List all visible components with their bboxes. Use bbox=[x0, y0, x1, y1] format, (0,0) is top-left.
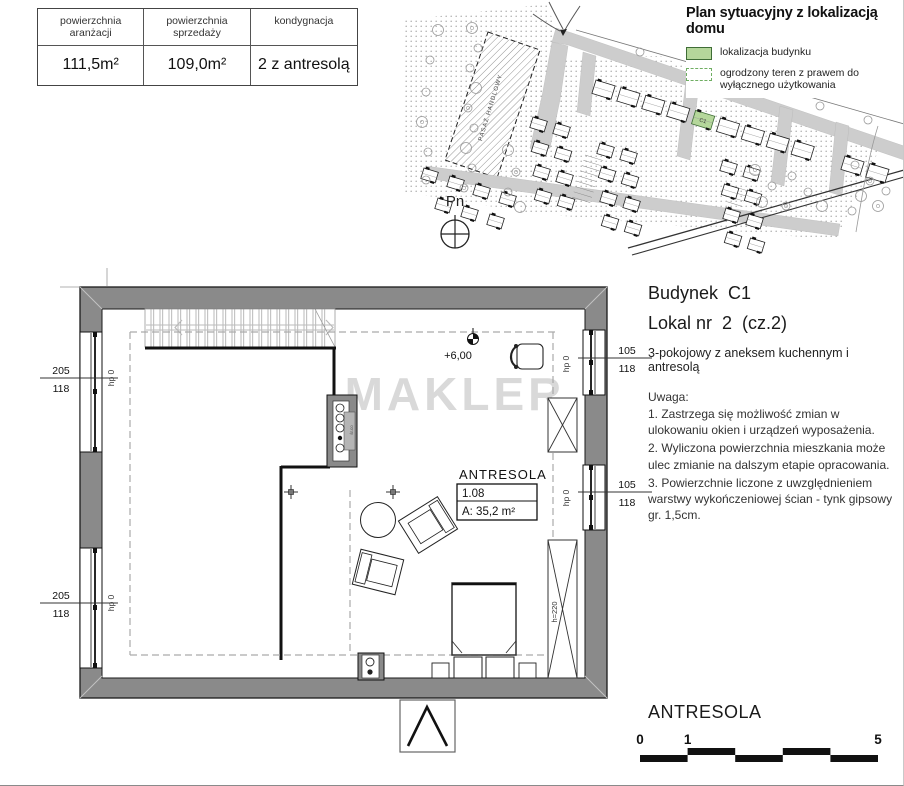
note-item: 3. Powierzchnie liczone z uwzględnieniem… bbox=[648, 475, 900, 524]
floor-plan-page: powierzchnia aranżacji powierzchnia sprz… bbox=[0, 0, 904, 786]
site-house bbox=[486, 212, 505, 230]
tree-icon bbox=[864, 116, 872, 124]
scale-bar-segments bbox=[640, 748, 878, 762]
building-title: Budynek C1 bbox=[648, 283, 900, 304]
crossed-zone bbox=[548, 398, 577, 452]
shaft-label: śr.co bbox=[349, 425, 354, 435]
site-plan-legend: Plan sytuacyjny z lokalizacją domu lokal… bbox=[686, 5, 904, 98]
height-annotation: h=220 bbox=[550, 601, 559, 622]
unit-description: 3-pokojowy z aneksem kuchennym i antreso… bbox=[648, 346, 900, 374]
window-width: 205 bbox=[52, 365, 70, 377]
room-name: ANTRESOLA bbox=[459, 467, 547, 482]
area-info-table: powierzchnia aranżacji powierzchnia sprz… bbox=[37, 8, 358, 86]
scale-tick: 5 bbox=[874, 732, 882, 747]
stair-void-balustrade bbox=[145, 309, 335, 347]
sill-height: hp 0 bbox=[561, 489, 571, 506]
table-value-sales-area: 109,0m² bbox=[144, 46, 250, 85]
level-value: +6,00 bbox=[444, 350, 472, 362]
crossed-zone-tall: h=220 bbox=[548, 540, 577, 678]
site-plan-title: Plan sytuacyjny z lokalizacją domu bbox=[686, 5, 904, 37]
roof-window-marker bbox=[400, 700, 455, 752]
tree-icon bbox=[873, 201, 884, 212]
legend-item-label: lokalizacja budynku bbox=[720, 46, 811, 58]
pillow bbox=[486, 657, 514, 678]
table-header: powierzchnia aranżacji bbox=[38, 9, 144, 46]
scale-tick: 0 bbox=[636, 732, 644, 747]
tree-icon bbox=[882, 187, 890, 195]
north-label: Pn bbox=[433, 193, 477, 210]
boiler-unit bbox=[358, 653, 384, 680]
round-table bbox=[361, 503, 396, 538]
footer-plan-title: ANTRESOLA bbox=[648, 702, 762, 723]
table-header: powierzchnia sprzedaży bbox=[144, 9, 250, 46]
window-height: 118 bbox=[619, 497, 636, 509]
unit-title: Lokal nr 2 (cz.2) bbox=[648, 313, 900, 334]
north-compass: Pn bbox=[433, 193, 477, 259]
installation-shaft: śr.co bbox=[327, 395, 357, 467]
building-location-swatch bbox=[686, 47, 712, 60]
window-right-2 bbox=[583, 465, 605, 530]
fenced-area-swatch bbox=[686, 68, 712, 81]
unit-info: Budynek C1 Lokal nr 2 (cz.2) 3-pokojowy … bbox=[648, 283, 900, 523]
tree-icon bbox=[636, 48, 644, 56]
site-house bbox=[724, 230, 743, 248]
scale-bar: 0 1 5 bbox=[628, 728, 890, 770]
nightstand bbox=[519, 663, 536, 678]
window-width: 205 bbox=[52, 590, 70, 602]
window-height: 118 bbox=[53, 383, 70, 395]
table-value-arrangement-area: 111,5m² bbox=[38, 46, 144, 85]
pillow bbox=[454, 657, 482, 678]
sill-height: hp 0 bbox=[106, 594, 116, 611]
table-value-storey: 2 z antresolą bbox=[251, 46, 357, 85]
compass-icon bbox=[433, 210, 477, 256]
sill-height: hp 0 bbox=[561, 355, 571, 372]
tree-icon bbox=[816, 102, 824, 110]
scale-tick: 1 bbox=[684, 732, 692, 747]
note-item: 1. Zastrzega się możliwość zmian w uloko… bbox=[648, 406, 900, 438]
window-height: 118 bbox=[619, 363, 636, 375]
watermark: MAKLER bbox=[345, 368, 566, 420]
notes-title: Uwaga: bbox=[648, 390, 900, 404]
window-height: 118 bbox=[53, 608, 70, 620]
nightstand bbox=[432, 663, 449, 678]
sill-height: hp 0 bbox=[106, 369, 116, 386]
tree-icon bbox=[856, 191, 867, 202]
room-number: 1.08 bbox=[462, 488, 484, 500]
window-left-1 bbox=[80, 332, 102, 452]
window-width: 105 bbox=[618, 345, 636, 357]
site-house bbox=[747, 236, 766, 254]
table-header: kondygnacja bbox=[251, 9, 357, 46]
room-area: A: 35,2 m² bbox=[462, 506, 515, 518]
window-left-2 bbox=[80, 548, 102, 668]
window-width: 105 bbox=[618, 479, 636, 491]
legend-item-label: ogrodzony teren z prawem do wyłącznego u… bbox=[720, 67, 904, 91]
room-label: ANTRESOLA 1.08 A: 35,2 m² bbox=[457, 467, 547, 520]
window-right-1 bbox=[583, 330, 605, 395]
floor-plan-drawing: MAKLER bbox=[30, 260, 670, 780]
note-item: 2. Wyliczona powierzchnia mieszkania moż… bbox=[648, 440, 900, 472]
